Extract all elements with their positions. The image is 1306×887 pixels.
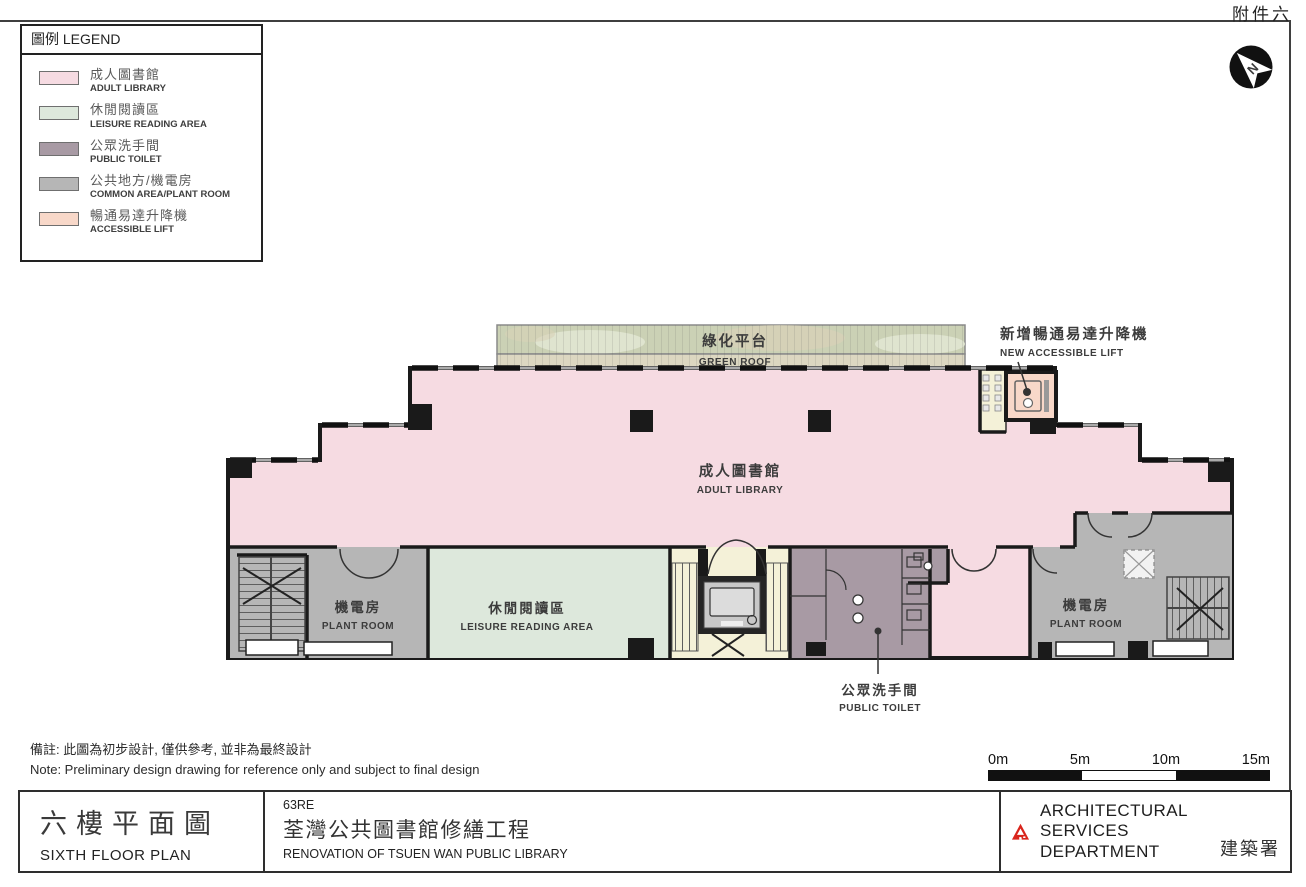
right-stair — [1167, 577, 1229, 639]
department-name-zh: 建築署 — [1220, 835, 1280, 862]
leisure-label-en: LEISURE READING AREA — [461, 622, 594, 633]
plant-room-left-label-zh: 機電房 — [335, 599, 382, 615]
plant-room-right-label-en: PLANT ROOM — [1050, 619, 1122, 630]
floor-plan: 綠化平台 GREEN ROOF — [0, 0, 1306, 780]
note-block: 備註: 此圖為初步設計, 僅供參考, 並非為最終設計 Note: Prelimi… — [30, 740, 479, 780]
scale-tick: 15m — [1242, 752, 1270, 768]
project-title-zh: 荃灣公共圖書館修繕工程 — [283, 814, 999, 844]
adult-library-label-en: ADULT LIBRARY — [697, 485, 784, 496]
title-block: 六樓平面圖 SIXTH FLOOR PLAN 63RE 荃灣公共圖書館修繕工程 … — [18, 790, 1292, 873]
asd-logo — [1011, 803, 1030, 861]
scale-tick: 10m — [1152, 752, 1180, 768]
project-title-cell: 63RE 荃灣公共圖書館修繕工程 RENOVATION OF TSUEN WAN… — [265, 792, 1001, 871]
scale-bar: 0m 5m 10m 15m — [988, 752, 1270, 781]
void-shaft — [1124, 550, 1154, 578]
green-roof-band: 綠化平台 GREEN ROOF — [497, 325, 965, 368]
project-title-en: RENOVATION OF TSUEN WAN PUBLIC LIBRARY — [283, 847, 999, 861]
project-code: 63RE — [283, 798, 999, 812]
note-line-en: Note: Preliminary design drawing for ref… — [30, 760, 479, 780]
left-stair — [239, 557, 305, 651]
plant-room-left-label-en: PLANT ROOM — [322, 621, 394, 632]
floor-title-zh: 六樓平面圖 — [40, 802, 263, 841]
note-line-zh: 備註: 此圖為初步設計, 僅供參考, 並非為最終設計 — [30, 740, 479, 760]
scale-tick: 0m — [988, 752, 1008, 768]
adult-library-label-zh: 成人圖書館 — [699, 462, 782, 480]
scale-tick: 5m — [1070, 752, 1090, 768]
drawing-title-cell: 六樓平面圖 SIXTH FLOOR PLAN — [20, 792, 265, 871]
green-roof-label-zh: 綠化平台 — [702, 332, 768, 350]
scale-bar-strip — [988, 770, 1270, 781]
department-name-en: ARCHITECTURAL SERVICES DEPARTMENT — [1040, 801, 1212, 861]
leisure-label-zh: 休閒閱讀區 — [487, 600, 566, 616]
plant-room-right-label-zh: 機電房 — [1063, 597, 1110, 613]
public-toilet-label-en: PUBLIC TOILET — [839, 703, 921, 714]
floor-title-en: SIXTH FLOOR PLAN — [40, 847, 263, 864]
new-lift-label-en: NEW ACCESSIBLE LIFT — [1000, 348, 1124, 359]
public-toilet-label-zh: 公眾洗手間 — [841, 682, 919, 698]
new-lift-label-zh: 新增暢通易達升降機 — [1000, 325, 1149, 343]
department-cell: ARCHITECTURAL SERVICES DEPARTMENT 建築署 — [1001, 792, 1290, 871]
